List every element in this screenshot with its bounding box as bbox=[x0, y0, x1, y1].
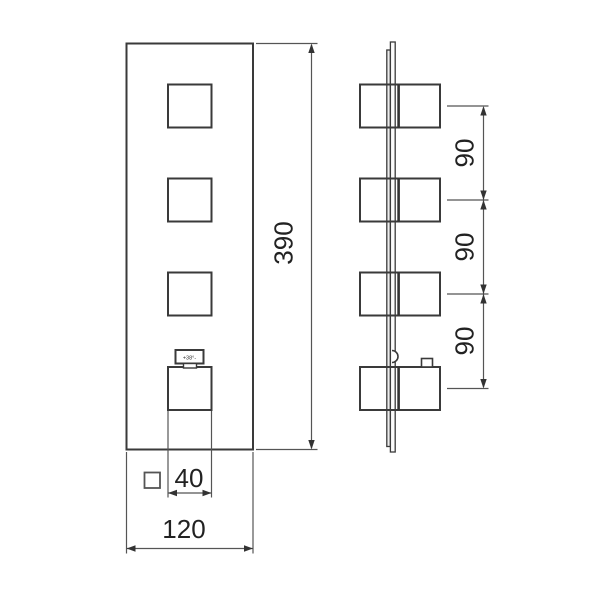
arrowhead-left bbox=[127, 545, 136, 551]
front-plate bbox=[127, 44, 254, 450]
arrowhead-right bbox=[244, 545, 253, 551]
side-handle-2 bbox=[360, 179, 440, 222]
arrowhead-down bbox=[480, 379, 486, 389]
arrowhead-up bbox=[480, 294, 486, 304]
handle-base-line-4 bbox=[397, 367, 400, 410]
dimension-label-spacing-2: 90 bbox=[450, 233, 480, 262]
handle-base-line-1 bbox=[397, 85, 400, 128]
side-plate-edge bbox=[390, 42, 395, 452]
arrowhead-up bbox=[308, 44, 314, 54]
side-handle-1 bbox=[360, 85, 440, 128]
arrowhead-down bbox=[480, 191, 486, 201]
arrowhead-right bbox=[203, 490, 212, 496]
handle-base-line-3 bbox=[397, 273, 400, 316]
side-handle-tab bbox=[422, 359, 433, 368]
dimension-label-spacing-1: 90 bbox=[450, 139, 480, 168]
arrowhead-up bbox=[480, 200, 486, 210]
dimension-label-handle-size: 40 bbox=[175, 463, 204, 493]
side-handle-4 bbox=[360, 367, 440, 410]
square-section-symbol-icon bbox=[145, 473, 161, 489]
dimension-label-overall-height: 390 bbox=[269, 221, 299, 264]
dimension-label-spacing-3: 90 bbox=[450, 327, 480, 356]
side-view bbox=[360, 42, 440, 452]
arrowhead-up bbox=[480, 106, 486, 116]
handle-base-line-2 bbox=[397, 179, 400, 222]
drawing-svg: +38°- 390 40 120 bbox=[0, 0, 600, 600]
side-handle-3 bbox=[360, 273, 440, 316]
arrowhead-down bbox=[308, 440, 314, 450]
temperature-indicator-label: +38°- bbox=[183, 356, 197, 362]
front-view: +38°- bbox=[127, 44, 254, 450]
side-indicator-bump bbox=[392, 351, 398, 363]
dimension-label-overall-width: 120 bbox=[162, 514, 205, 544]
temperature-indicator-neck bbox=[184, 364, 197, 369]
technical-drawing-canvas: +38°- 390 40 120 bbox=[0, 0, 600, 600]
arrowhead-down bbox=[480, 285, 486, 295]
